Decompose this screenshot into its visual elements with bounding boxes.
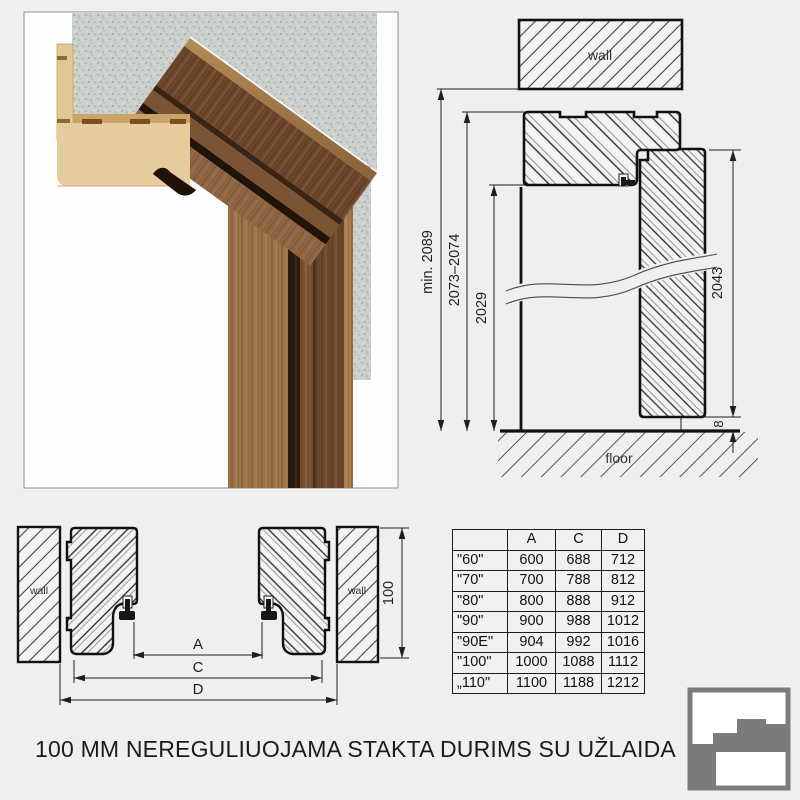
- table-row: "60"600688712: [453, 550, 645, 571]
- table-row: „110"110011881212: [453, 673, 645, 694]
- wall-label: wall: [587, 47, 612, 63]
- jamb-profile-left: [67, 528, 137, 654]
- table-cell: 712: [602, 550, 645, 571]
- table-cell: 1088: [556, 653, 602, 674]
- table-cell: "60": [453, 550, 508, 571]
- dim-leaf-height: 2043: [710, 267, 726, 299]
- table-cell: 1112: [602, 653, 645, 674]
- table-cell: 600: [508, 550, 556, 571]
- jamb-profile-right: [259, 528, 329, 654]
- table-cell: [453, 530, 508, 551]
- dim-clear-opening: 2029: [474, 292, 490, 324]
- product-photo: [24, 12, 398, 488]
- size-table: ACD"60"600688712"70"700788812"80"8008889…: [452, 529, 645, 694]
- dim-depth: 100: [381, 581, 397, 605]
- dim-a-label: A: [193, 636, 203, 653]
- table-cell: 1212: [602, 673, 645, 694]
- caption-title: 100 MM NEREGULIUOJAMA STAKTA DURIMS SU U…: [35, 736, 765, 763]
- table-cell: 1100: [508, 673, 556, 694]
- table-cell: C: [556, 530, 602, 551]
- table-cell: 1000: [508, 653, 556, 674]
- table-cell: 912: [602, 591, 645, 612]
- table-cell: "70": [453, 571, 508, 592]
- diagram-canvas: wall floor: [0, 0, 800, 800]
- table-cell: 1012: [602, 612, 645, 633]
- table-cell: 812: [602, 571, 645, 592]
- wall-left-label: wall: [29, 585, 48, 597]
- table-cell: "100": [453, 653, 508, 674]
- table-cell: 1016: [602, 632, 645, 653]
- table-row: "80"800888912: [453, 591, 645, 612]
- horizontal-section-drawing: wall wall: [18, 527, 409, 705]
- dim-min-height: min. 2089: [420, 230, 436, 294]
- table-row: "90E"9049921016: [453, 632, 645, 653]
- vertical-section-drawing: wall floor: [420, 20, 758, 477]
- table-cell: "90": [453, 612, 508, 633]
- table-cell: D: [602, 530, 645, 551]
- table-cell: "90E": [453, 632, 508, 653]
- table-cell: 788: [556, 571, 602, 592]
- table-cell: 800: [508, 591, 556, 612]
- table-cell: 904: [508, 632, 556, 653]
- table-row: "100"100010881112: [453, 653, 645, 674]
- dim-c-label: C: [193, 659, 204, 676]
- table-row: "70"700788812: [453, 571, 645, 592]
- table-cell: 992: [556, 632, 602, 653]
- table-row: "90"9009881012: [453, 612, 645, 633]
- table-cell: 700: [508, 571, 556, 592]
- dim-frame-height: 2073–2074: [447, 234, 463, 307]
- dim-d-label: D: [193, 681, 204, 698]
- wall-right-label: wall: [347, 585, 366, 597]
- table-cell: 1188: [556, 673, 602, 694]
- floor-label: floor: [605, 450, 633, 466]
- table-cell: A: [508, 530, 556, 551]
- table-cell: 888: [556, 591, 602, 612]
- table-cell: "80": [453, 591, 508, 612]
- table-cell: 988: [556, 612, 602, 633]
- table-cell: 900: [508, 612, 556, 633]
- table-cell: „110": [453, 673, 508, 694]
- dim-floor-gap: 8: [711, 420, 726, 427]
- table-header-row: ACD: [453, 530, 645, 551]
- table-cell: 688: [556, 550, 602, 571]
